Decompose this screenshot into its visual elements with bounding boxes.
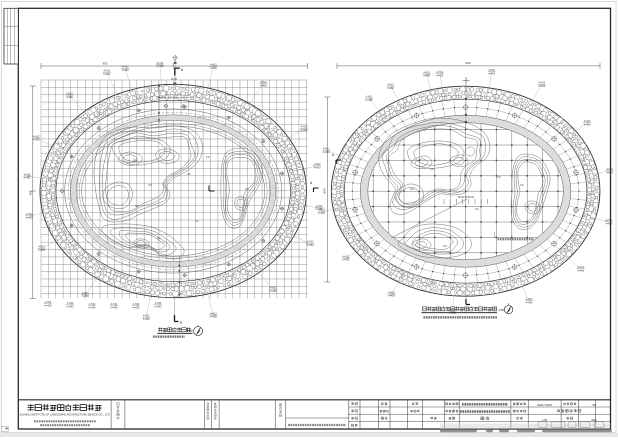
svg-text:h=450: h=450 (307, 244, 314, 247)
svg-text:h=450: h=450 (26, 217, 33, 220)
svg-text:h=450: h=450 (33, 139, 40, 142)
svg-text:06: 06 (593, 403, 596, 407)
svg-text:1:50: 1:50 (499, 308, 505, 312)
svg-text:900: 900 (465, 61, 470, 65)
svg-text:B: B (181, 68, 183, 72)
svg-text:h=450: h=450 (605, 222, 612, 225)
svg-text:2020-Y2203: 2020-Y2203 (537, 403, 552, 407)
svg-text:h=450: h=450 (45, 304, 52, 307)
svg-text:B: B (180, 321, 182, 325)
svg-text:h=450: h=450 (155, 305, 162, 308)
svg-text:h=450: h=450 (111, 306, 118, 309)
svg-text:h=450: h=450 (24, 177, 31, 180)
svg-text:h=450: h=450 (488, 72, 495, 75)
svg-text:h=450: h=450 (89, 306, 96, 309)
svg-text:h=450: h=450 (436, 74, 443, 77)
svg-text:h=450: h=450 (210, 67, 217, 70)
svg-text:h=450: h=450 (387, 87, 394, 90)
svg-text:900: 900 (28, 190, 32, 195)
svg-text:SUZHOU INSTITUTE OF LANDSCAPE: SUZHOU INSTITUTE OF LANDSCAPE ARCHITECTU… (20, 413, 110, 416)
svg-text:900: 900 (323, 188, 327, 193)
svg-text:h=450: h=450 (318, 212, 325, 215)
svg-text:h=450: h=450 (606, 171, 613, 174)
svg-text:h=450: h=450 (584, 123, 591, 126)
svg-text:h=450: h=450 (366, 99, 373, 102)
svg-text:h=450: h=450 (143, 318, 150, 321)
svg-text:h=450: h=450 (260, 84, 267, 87)
svg-text:h=450: h=450 (577, 269, 584, 272)
svg-text:h=450: h=450 (103, 73, 110, 76)
svg-text:h=450: h=450 (423, 75, 430, 78)
svg-text:h=450: h=450 (210, 316, 217, 319)
svg-text:h=450: h=450 (388, 295, 395, 298)
svg-text:h=450: h=450 (526, 301, 533, 304)
svg-text:90 90 90 90 90: 90 90 90 90 90 (458, 196, 475, 199)
svg-text:h=450: h=450 (270, 290, 277, 293)
svg-text:30 30: 30 30 (171, 78, 178, 81)
svg-text:h=450: h=450 (82, 295, 89, 298)
svg-text:h=450: h=450 (67, 305, 74, 308)
svg-text:h=450: h=450 (301, 129, 308, 132)
svg-text:900: 900 (103, 62, 108, 66)
svg-text:1:50: 1:50 (186, 329, 192, 333)
svg-text:h=450: h=450 (133, 306, 140, 309)
svg-text:h=450: h=450 (342, 259, 349, 262)
svg-text:h=450: h=450 (122, 69, 129, 72)
svg-text:h=450: h=450 (156, 65, 163, 68)
svg-text:h=450: h=450 (66, 96, 73, 99)
svg-text:h=450: h=450 (323, 151, 330, 154)
svg-text:h=450: h=450 (538, 85, 545, 88)
svg-text:h=450: h=450 (38, 249, 45, 252)
svg-text:h=450: h=450 (314, 166, 321, 169)
